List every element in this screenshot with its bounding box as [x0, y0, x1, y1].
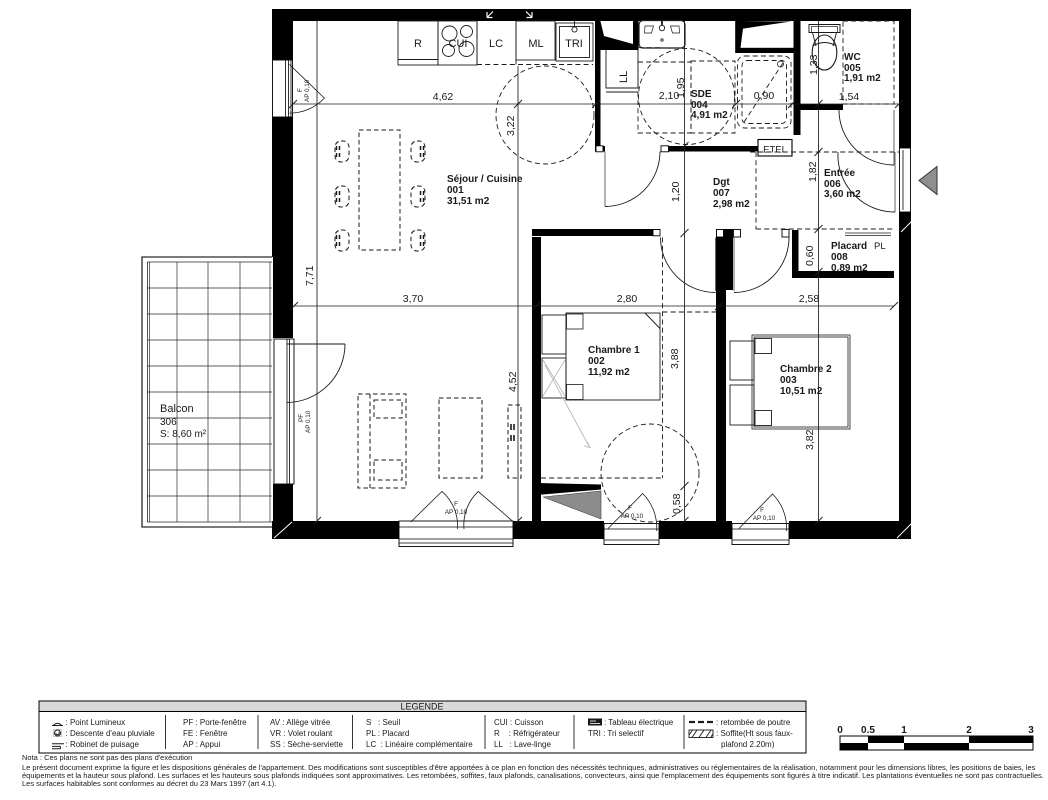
svg-text:008: 008 — [831, 252, 848, 263]
svg-text:F: F — [454, 501, 458, 508]
svg-text:AP 0,10: AP 0,10 — [445, 509, 468, 516]
svg-text:3,60 m2: 3,60 m2 — [824, 189, 861, 200]
svg-text:Placard: Placard — [831, 241, 867, 252]
svg-text:Les surfaces habitables sont c: Les surfaces habitables sont conformes a… — [22, 779, 276, 788]
svg-text:LL: LL — [618, 71, 630, 83]
svg-text:F: F — [760, 507, 764, 514]
svg-text:PL : Placard: PL : Placard — [366, 729, 409, 738]
svg-text:Nota : Ces plans ne sont pas d: Nota : Ces plans ne sont pas des plans d… — [22, 753, 192, 762]
svg-text:1: 1 — [901, 725, 907, 736]
svg-text:2: 2 — [966, 725, 972, 736]
svg-text:3,70: 3,70 — [403, 293, 424, 305]
svg-text:0: 0 — [837, 725, 843, 736]
svg-text:F: F — [297, 88, 304, 92]
svg-text:ML: ML — [528, 38, 543, 50]
svg-text:LL : Lave-linge: LL : Lave-linge — [494, 740, 551, 749]
svg-text:WC: WC — [844, 52, 861, 63]
svg-text:Entrée: Entrée — [824, 168, 856, 179]
svg-text:31,51 m2: 31,51 m2 — [447, 196, 490, 207]
svg-text:7,71: 7,71 — [304, 265, 316, 286]
svg-text:AP 0,10: AP 0,10 — [621, 513, 644, 520]
svg-text:11,92 m2: 11,92 m2 — [588, 367, 630, 378]
svg-text:10,51 m2: 10,51 m2 — [780, 386, 823, 397]
svg-text:AP : Appui: AP : Appui — [183, 740, 220, 749]
svg-text:TRI : Tri selectif: TRI : Tri selectif — [588, 729, 644, 738]
svg-text:2,98 m2: 2,98 m2 — [713, 199, 750, 210]
svg-text:FE : Fenêtre: FE : Fenêtre — [183, 729, 228, 738]
svg-text:R : Réfrigérateur: R : Réfrigérateur — [494, 729, 560, 738]
svg-text:2,80: 2,80 — [617, 293, 638, 305]
svg-text:007: 007 — [713, 188, 730, 199]
svg-text:3: 3 — [1028, 725, 1034, 736]
svg-text:1,82: 1,82 — [807, 161, 819, 182]
svg-text:4,52: 4,52 — [507, 371, 519, 392]
svg-text:0,58: 0,58 — [671, 493, 683, 514]
svg-text:AP 0,10: AP 0,10 — [304, 79, 311, 102]
svg-text:Chambre 2: Chambre 2 — [780, 364, 832, 375]
svg-text:003: 003 — [780, 375, 797, 386]
svg-text:S : Seuil: S : Seuil — [366, 718, 400, 727]
svg-text:306: 306 — [160, 417, 177, 428]
svg-text:S: 8,60 m²: S: 8,60 m² — [160, 429, 207, 440]
svg-text:0.5: 0.5 — [861, 725, 875, 736]
svg-text:CUI: CUI — [449, 38, 468, 50]
svg-text:0,90: 0,90 — [754, 90, 775, 102]
svg-text:0,89 m2: 0,89 m2 — [831, 263, 868, 274]
svg-text:: Descente d'eau pluviale: : Descente d'eau pluviale — [66, 729, 156, 738]
svg-text:4,62: 4,62 — [433, 91, 454, 103]
svg-text:F: F — [628, 505, 632, 512]
svg-text:ETEL: ETEL — [763, 145, 787, 156]
svg-text:3,82: 3,82 — [804, 429, 816, 450]
svg-text:PF : Porte-fenêtre: PF : Porte-fenêtre — [183, 718, 247, 727]
svg-text:LEGENDE: LEGENDE — [400, 702, 443, 712]
svg-text:: Point Lumineux: : Point Lumineux — [66, 718, 126, 727]
svg-text:PL: PL — [874, 241, 886, 252]
svg-text:001: 001 — [447, 185, 464, 196]
svg-text:TRI: TRI — [565, 38, 583, 50]
svg-text:LC : Linéaire complémentaire: LC : Linéaire complémentaire — [366, 740, 473, 749]
svg-text:Séjour / Cuisine: Séjour / Cuisine — [447, 174, 523, 185]
svg-text:plafond 2.20m): plafond 2.20m) — [721, 740, 775, 749]
svg-text:VR : Volet roulant: VR : Volet roulant — [270, 729, 333, 738]
svg-text:AV : Allège vitrée: AV : Allège vitrée — [270, 718, 331, 727]
svg-text:1,91 m2: 1,91 m2 — [844, 73, 881, 84]
svg-text:1,54: 1,54 — [839, 91, 860, 103]
svg-text:3,88: 3,88 — [669, 348, 681, 369]
svg-text:: Robinet de puisage: : Robinet de puisage — [66, 740, 140, 749]
svg-text:: retombée de poutre: : retombée de poutre — [716, 718, 791, 727]
svg-text:1,95: 1,95 — [675, 77, 687, 98]
svg-text:1,33: 1,33 — [808, 54, 820, 75]
svg-text:AP 0,10: AP 0,10 — [305, 410, 312, 433]
svg-text:002: 002 — [588, 356, 605, 367]
svg-text:2,58: 2,58 — [799, 293, 820, 305]
svg-text:0,60: 0,60 — [804, 245, 816, 266]
svg-text:AP 0,10: AP 0,10 — [753, 515, 776, 522]
svg-text:: Soffite(Ht sous faux-: : Soffite(Ht sous faux- — [716, 729, 793, 738]
svg-text:LC: LC — [489, 38, 503, 50]
svg-text:PF: PF — [298, 414, 305, 422]
svg-text:Dgt: Dgt — [713, 177, 730, 188]
svg-text:Chambre 1: Chambre 1 — [588, 345, 640, 356]
svg-text:CUI : Cuisson: CUI : Cuisson — [494, 718, 543, 727]
svg-text:: Tableau électrique: : Tableau électrique — [604, 718, 674, 727]
svg-text:Balcon: Balcon — [160, 403, 194, 415]
svg-text:1,20: 1,20 — [670, 181, 682, 202]
svg-text:SS : Sèche-serviette: SS : Sèche-serviette — [270, 740, 343, 749]
svg-text:SDE: SDE — [691, 89, 712, 100]
svg-text:R: R — [414, 38, 422, 50]
svg-text:3,22: 3,22 — [505, 115, 517, 136]
svg-text:4,91 m2: 4,91 m2 — [691, 110, 728, 121]
